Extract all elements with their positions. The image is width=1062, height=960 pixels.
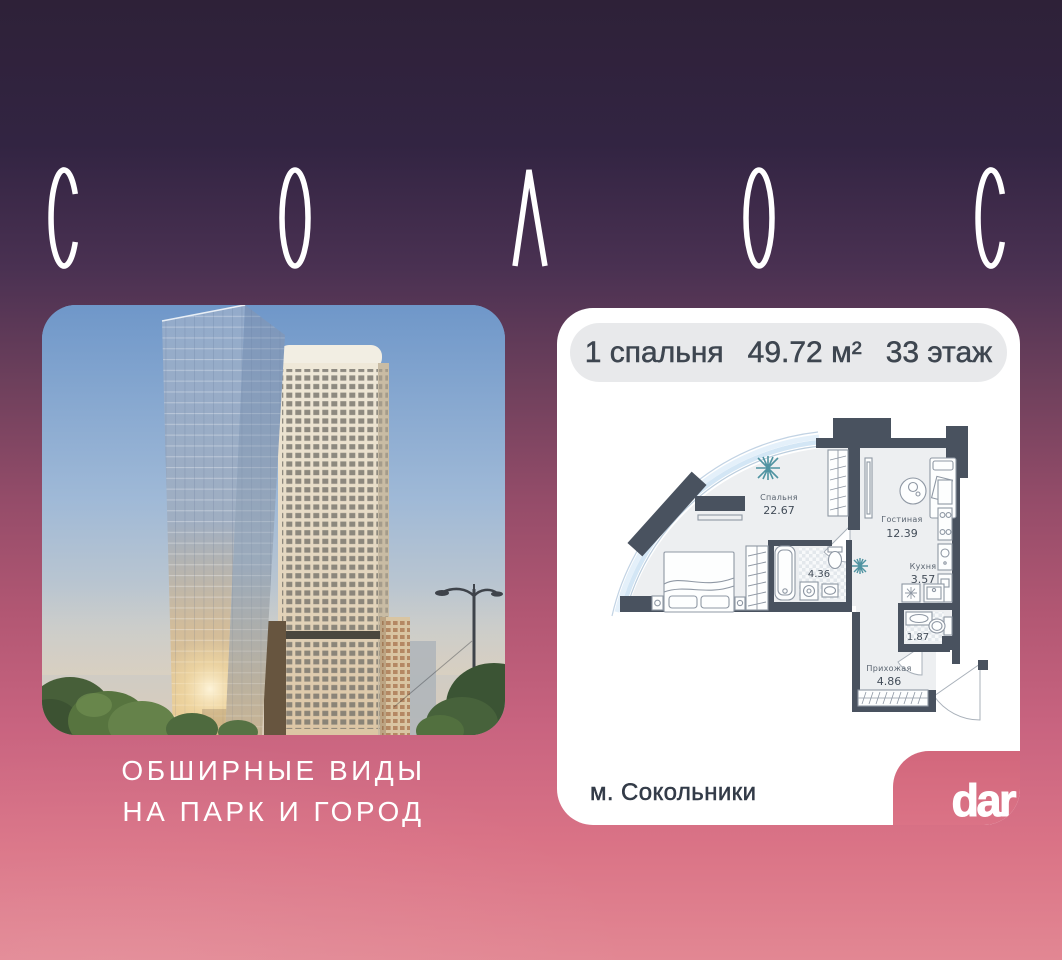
apartment-card: 1 спальня 49.72 м² 33 этаж [557, 308, 1020, 825]
letter-l [515, 170, 545, 266]
floor-plan: Спальня 22.67 Гостиная 12.39 Кухня 3.57 … [606, 414, 998, 734]
caption-line-1: ОБШИРНЫЕ ВИДЫ [42, 750, 505, 791]
label-living-area: 12.39 [886, 527, 918, 540]
label-bedroom-name: Спальня [760, 493, 798, 502]
caption-line-2: НА ПАРК И ГОРОД [42, 791, 505, 832]
label-bathroom-area: 4.36 [808, 569, 830, 580]
headline-letters [51, 170, 1002, 266]
spec-bedrooms: 1 спальня [585, 336, 724, 370]
building-photo-scene [42, 305, 505, 735]
tv-console [695, 496, 745, 511]
building-photo [42, 305, 505, 735]
beige-tower [278, 345, 389, 735]
label-hallway-name: Прихожая [866, 664, 911, 673]
logo-notch: dar [893, 751, 1020, 825]
metro-station: м. Сокольники [590, 779, 756, 807]
washer [800, 582, 818, 600]
spec-pill: 1 спальня 49.72 м² 33 этаж [570, 323, 1007, 382]
toilet-bath [829, 552, 842, 569]
label-living-name: Гостиная [881, 515, 922, 524]
photo-caption: ОБШИРНЫЕ ВИДЫ НА ПАРК И ГОРОД [42, 750, 505, 832]
label-wc-area: 1.87 [907, 632, 929, 643]
spec-area: 49.72 м² [748, 336, 862, 370]
label-kitchen-name: Кухня [910, 562, 937, 571]
letter-s-1 [51, 170, 75, 266]
letter-s-2 [978, 170, 1002, 266]
label-kitchen-area: 3.57 [911, 573, 936, 586]
dar-logo: dar [951, 778, 1014, 823]
letter-o-2 [746, 170, 772, 266]
letter-o-1 [282, 170, 308, 266]
entrance-door [934, 664, 980, 720]
headline-solos [0, 0, 1062, 300]
spec-floor: 33 этаж [886, 336, 993, 370]
label-hallway-area: 4.86 [877, 675, 902, 688]
label-bedroom-area: 22.67 [763, 504, 795, 517]
mirror-panel [865, 458, 872, 518]
